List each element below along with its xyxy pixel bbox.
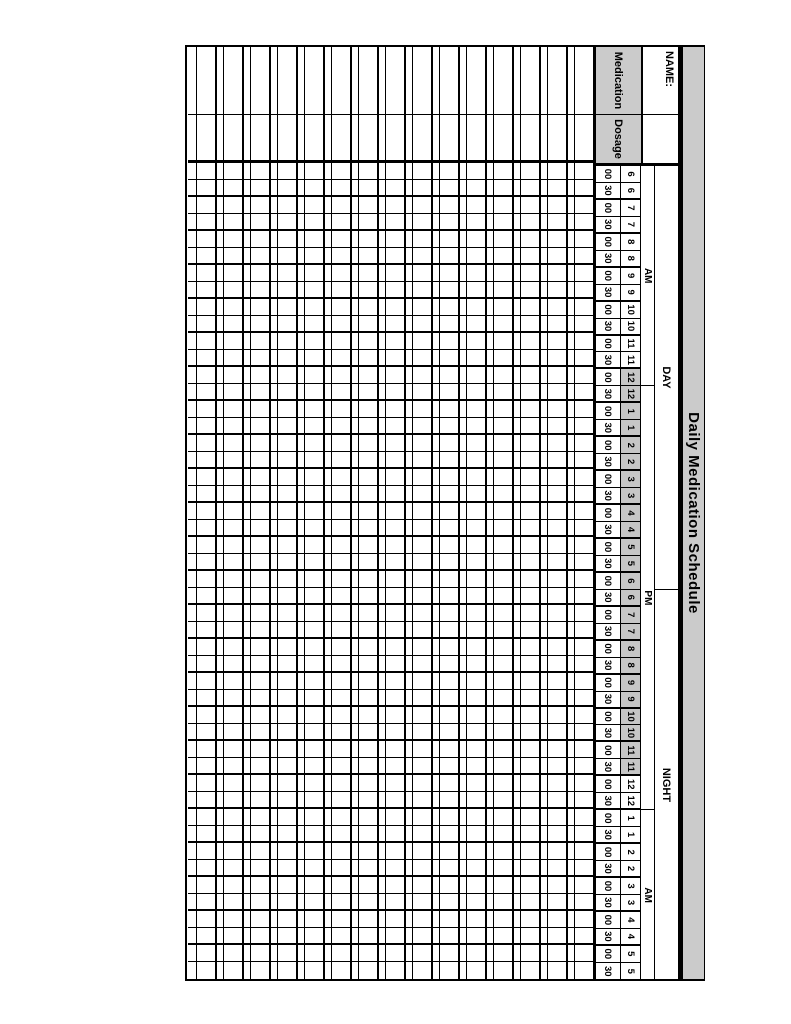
schedule-fill-in-cell[interactable] bbox=[575, 843, 593, 860]
schedule-fill-in-cell[interactable] bbox=[514, 265, 520, 282]
schedule-fill-in-cell[interactable] bbox=[217, 690, 223, 707]
schedule-fill-in-cell[interactable] bbox=[487, 248, 493, 265]
schedule-fill-in-cell[interactable] bbox=[413, 809, 431, 826]
schedule-fill-in-cell[interactable] bbox=[568, 384, 574, 401]
schedule-fill-in-cell[interactable] bbox=[271, 248, 277, 265]
schedule-fill-in-cell[interactable] bbox=[224, 809, 242, 826]
schedule-fill-in-cell[interactable] bbox=[251, 180, 269, 197]
schedule-fill-in-cell[interactable] bbox=[514, 469, 520, 486]
schedule-fill-in-cell[interactable] bbox=[541, 758, 547, 775]
schedule-fill-in-cell[interactable] bbox=[541, 163, 547, 180]
schedule-fill-in-cell[interactable] bbox=[521, 452, 539, 469]
schedule-fill-in-cell[interactable] bbox=[352, 350, 358, 367]
schedule-fill-in-cell[interactable] bbox=[298, 775, 304, 792]
schedule-fill-in-cell[interactable] bbox=[325, 809, 331, 826]
schedule-fill-in-cell[interactable] bbox=[541, 605, 547, 622]
schedule-fill-in-cell[interactable] bbox=[433, 843, 439, 860]
schedule-fill-in-cell[interactable] bbox=[494, 758, 512, 775]
schedule-fill-in-cell[interactable] bbox=[352, 571, 358, 588]
schedule-fill-in-cell[interactable] bbox=[251, 826, 269, 843]
schedule-fill-in-cell[interactable] bbox=[467, 588, 485, 605]
schedule-fill-in-cell[interactable] bbox=[224, 724, 242, 741]
schedule-fill-in-cell[interactable] bbox=[568, 350, 574, 367]
schedule-fill-in-cell[interactable] bbox=[575, 809, 593, 826]
schedule-fill-in-cell[interactable] bbox=[359, 826, 377, 843]
schedule-fill-in-cell[interactable] bbox=[568, 316, 574, 333]
schedule-fill-in-cell[interactable] bbox=[386, 962, 404, 979]
schedule-fill-in-cell[interactable] bbox=[433, 299, 439, 316]
schedule-fill-in-cell[interactable] bbox=[188, 673, 196, 690]
schedule-fill-in-cell[interactable] bbox=[197, 231, 215, 248]
schedule-fill-in-cell[interactable] bbox=[271, 962, 277, 979]
schedule-fill-in-cell[interactable] bbox=[467, 690, 485, 707]
schedule-fill-in-cell[interactable] bbox=[197, 333, 215, 350]
schedule-fill-in-cell[interactable] bbox=[494, 537, 512, 554]
schedule-fill-in-cell[interactable] bbox=[379, 588, 385, 605]
medication-fill-in-cell[interactable] bbox=[332, 47, 350, 115]
schedule-fill-in-cell[interactable] bbox=[406, 350, 412, 367]
schedule-fill-in-cell[interactable] bbox=[575, 435, 593, 452]
schedule-fill-in-cell[interactable] bbox=[440, 486, 458, 503]
schedule-fill-in-cell[interactable] bbox=[386, 741, 404, 758]
schedule-fill-in-cell[interactable] bbox=[541, 962, 547, 979]
schedule-fill-in-cell[interactable] bbox=[325, 367, 331, 384]
schedule-fill-in-cell[interactable] bbox=[514, 605, 520, 622]
schedule-fill-in-cell[interactable] bbox=[487, 452, 493, 469]
schedule-fill-in-cell[interactable] bbox=[217, 469, 223, 486]
schedule-fill-in-cell[interactable] bbox=[217, 503, 223, 520]
schedule-fill-in-cell[interactable] bbox=[332, 384, 350, 401]
schedule-fill-in-cell[interactable] bbox=[440, 350, 458, 367]
schedule-fill-in-cell[interactable] bbox=[197, 350, 215, 367]
schedule-fill-in-cell[interactable] bbox=[521, 316, 539, 333]
schedule-fill-in-cell[interactable] bbox=[487, 605, 493, 622]
schedule-fill-in-cell[interactable] bbox=[568, 673, 574, 690]
schedule-fill-in-cell[interactable] bbox=[548, 469, 566, 486]
schedule-fill-in-cell[interactable] bbox=[541, 214, 547, 231]
schedule-fill-in-cell[interactable] bbox=[298, 197, 304, 214]
schedule-fill-in-cell[interactable] bbox=[467, 401, 485, 418]
schedule-fill-in-cell[interactable] bbox=[298, 316, 304, 333]
schedule-fill-in-cell[interactable] bbox=[575, 248, 593, 265]
schedule-fill-in-cell[interactable] bbox=[440, 792, 458, 809]
dosage-fill-in-cell[interactable] bbox=[352, 115, 358, 163]
schedule-fill-in-cell[interactable] bbox=[217, 639, 223, 656]
schedule-fill-in-cell[interactable] bbox=[575, 639, 593, 656]
schedule-fill-in-cell[interactable] bbox=[548, 180, 566, 197]
schedule-fill-in-cell[interactable] bbox=[440, 622, 458, 639]
schedule-fill-in-cell[interactable] bbox=[305, 571, 323, 588]
schedule-fill-in-cell[interactable] bbox=[413, 231, 431, 248]
schedule-fill-in-cell[interactable] bbox=[271, 894, 277, 911]
schedule-fill-in-cell[interactable] bbox=[197, 877, 215, 894]
schedule-fill-in-cell[interactable] bbox=[548, 911, 566, 928]
schedule-fill-in-cell[interactable] bbox=[541, 248, 547, 265]
schedule-fill-in-cell[interactable] bbox=[251, 401, 269, 418]
schedule-fill-in-cell[interactable] bbox=[325, 435, 331, 452]
schedule-fill-in-cell[interactable] bbox=[197, 520, 215, 537]
schedule-fill-in-cell[interactable] bbox=[244, 265, 250, 282]
schedule-fill-in-cell[interactable] bbox=[278, 163, 296, 180]
schedule-fill-in-cell[interactable] bbox=[244, 809, 250, 826]
schedule-fill-in-cell[interactable] bbox=[433, 809, 439, 826]
schedule-fill-in-cell[interactable] bbox=[487, 877, 493, 894]
schedule-fill-in-cell[interactable] bbox=[514, 418, 520, 435]
schedule-fill-in-cell[interactable] bbox=[325, 775, 331, 792]
schedule-fill-in-cell[interactable] bbox=[379, 520, 385, 537]
schedule-fill-in-cell[interactable] bbox=[305, 622, 323, 639]
medication-fill-in-cell[interactable] bbox=[224, 47, 242, 115]
schedule-fill-in-cell[interactable] bbox=[298, 843, 304, 860]
schedule-fill-in-cell[interactable] bbox=[298, 418, 304, 435]
schedule-fill-in-cell[interactable] bbox=[460, 894, 466, 911]
schedule-fill-in-cell[interactable] bbox=[298, 401, 304, 418]
schedule-fill-in-cell[interactable] bbox=[244, 911, 250, 928]
schedule-fill-in-cell[interactable] bbox=[575, 707, 593, 724]
schedule-fill-in-cell[interactable] bbox=[379, 724, 385, 741]
schedule-fill-in-cell[interactable] bbox=[575, 316, 593, 333]
schedule-fill-in-cell[interactable] bbox=[487, 197, 493, 214]
schedule-fill-in-cell[interactable] bbox=[188, 809, 196, 826]
schedule-fill-in-cell[interactable] bbox=[379, 809, 385, 826]
medication-fill-in-cell[interactable] bbox=[521, 47, 539, 115]
schedule-fill-in-cell[interactable] bbox=[541, 571, 547, 588]
schedule-fill-in-cell[interactable] bbox=[568, 843, 574, 860]
schedule-fill-in-cell[interactable] bbox=[379, 945, 385, 962]
schedule-fill-in-cell[interactable] bbox=[188, 792, 196, 809]
schedule-fill-in-cell[interactable] bbox=[332, 282, 350, 299]
schedule-fill-in-cell[interactable] bbox=[244, 945, 250, 962]
schedule-fill-in-cell[interactable] bbox=[305, 418, 323, 435]
schedule-fill-in-cell[interactable] bbox=[298, 724, 304, 741]
schedule-fill-in-cell[interactable] bbox=[568, 163, 574, 180]
schedule-fill-in-cell[interactable] bbox=[413, 690, 431, 707]
schedule-fill-in-cell[interactable] bbox=[224, 163, 242, 180]
schedule-fill-in-cell[interactable] bbox=[406, 690, 412, 707]
schedule-fill-in-cell[interactable] bbox=[568, 282, 574, 299]
schedule-fill-in-cell[interactable] bbox=[568, 724, 574, 741]
schedule-fill-in-cell[interactable] bbox=[197, 775, 215, 792]
schedule-fill-in-cell[interactable] bbox=[494, 452, 512, 469]
schedule-fill-in-cell[interactable] bbox=[224, 180, 242, 197]
schedule-fill-in-cell[interactable] bbox=[379, 758, 385, 775]
schedule-fill-in-cell[interactable] bbox=[521, 707, 539, 724]
schedule-fill-in-cell[interactable] bbox=[487, 775, 493, 792]
schedule-fill-in-cell[interactable] bbox=[271, 231, 277, 248]
schedule-fill-in-cell[interactable] bbox=[352, 673, 358, 690]
schedule-fill-in-cell[interactable] bbox=[541, 809, 547, 826]
schedule-fill-in-cell[interactable] bbox=[413, 877, 431, 894]
schedule-fill-in-cell[interactable] bbox=[359, 197, 377, 214]
schedule-fill-in-cell[interactable] bbox=[568, 894, 574, 911]
schedule-fill-in-cell[interactable] bbox=[305, 656, 323, 673]
schedule-fill-in-cell[interactable] bbox=[433, 180, 439, 197]
schedule-fill-in-cell[interactable] bbox=[460, 945, 466, 962]
medication-fill-in-cell[interactable] bbox=[575, 47, 593, 115]
schedule-fill-in-cell[interactable] bbox=[325, 622, 331, 639]
schedule-fill-in-cell[interactable] bbox=[433, 571, 439, 588]
schedule-fill-in-cell[interactable] bbox=[352, 945, 358, 962]
schedule-fill-in-cell[interactable] bbox=[514, 401, 520, 418]
schedule-fill-in-cell[interactable] bbox=[251, 384, 269, 401]
schedule-fill-in-cell[interactable] bbox=[413, 707, 431, 724]
schedule-fill-in-cell[interactable] bbox=[460, 452, 466, 469]
schedule-fill-in-cell[interactable] bbox=[197, 809, 215, 826]
schedule-fill-in-cell[interactable] bbox=[197, 571, 215, 588]
schedule-fill-in-cell[interactable] bbox=[433, 214, 439, 231]
schedule-fill-in-cell[interactable] bbox=[487, 554, 493, 571]
schedule-fill-in-cell[interactable] bbox=[188, 333, 196, 350]
medication-fill-in-cell[interactable] bbox=[568, 47, 574, 115]
schedule-fill-in-cell[interactable] bbox=[298, 384, 304, 401]
schedule-fill-in-cell[interactable] bbox=[460, 724, 466, 741]
schedule-fill-in-cell[interactable] bbox=[386, 843, 404, 860]
schedule-fill-in-cell[interactable] bbox=[251, 894, 269, 911]
schedule-fill-in-cell[interactable] bbox=[217, 741, 223, 758]
schedule-fill-in-cell[interactable] bbox=[467, 520, 485, 537]
schedule-fill-in-cell[interactable] bbox=[325, 945, 331, 962]
schedule-fill-in-cell[interactable] bbox=[325, 826, 331, 843]
schedule-fill-in-cell[interactable] bbox=[575, 605, 593, 622]
schedule-fill-in-cell[interactable] bbox=[298, 911, 304, 928]
schedule-fill-in-cell[interactable] bbox=[440, 282, 458, 299]
schedule-fill-in-cell[interactable] bbox=[271, 435, 277, 452]
schedule-fill-in-cell[interactable] bbox=[440, 656, 458, 673]
schedule-fill-in-cell[interactable] bbox=[548, 316, 566, 333]
schedule-fill-in-cell[interactable] bbox=[413, 435, 431, 452]
schedule-fill-in-cell[interactable] bbox=[217, 452, 223, 469]
schedule-fill-in-cell[interactable] bbox=[386, 214, 404, 231]
schedule-fill-in-cell[interactable] bbox=[568, 486, 574, 503]
schedule-fill-in-cell[interactable] bbox=[440, 248, 458, 265]
schedule-fill-in-cell[interactable] bbox=[460, 826, 466, 843]
schedule-fill-in-cell[interactable] bbox=[541, 843, 547, 860]
schedule-fill-in-cell[interactable] bbox=[197, 418, 215, 435]
schedule-fill-in-cell[interactable] bbox=[386, 605, 404, 622]
schedule-fill-in-cell[interactable] bbox=[575, 792, 593, 809]
schedule-fill-in-cell[interactable] bbox=[379, 928, 385, 945]
schedule-fill-in-cell[interactable] bbox=[467, 265, 485, 282]
schedule-fill-in-cell[interactable] bbox=[406, 214, 412, 231]
schedule-fill-in-cell[interactable] bbox=[244, 605, 250, 622]
schedule-fill-in-cell[interactable] bbox=[548, 673, 566, 690]
schedule-fill-in-cell[interactable] bbox=[386, 401, 404, 418]
schedule-fill-in-cell[interactable] bbox=[332, 248, 350, 265]
schedule-fill-in-cell[interactable] bbox=[413, 452, 431, 469]
schedule-fill-in-cell[interactable] bbox=[217, 435, 223, 452]
schedule-fill-in-cell[interactable] bbox=[188, 418, 196, 435]
schedule-fill-in-cell[interactable] bbox=[217, 214, 223, 231]
schedule-fill-in-cell[interactable] bbox=[244, 826, 250, 843]
schedule-fill-in-cell[interactable] bbox=[271, 469, 277, 486]
medication-fill-in-cell[interactable] bbox=[352, 47, 358, 115]
schedule-fill-in-cell[interactable] bbox=[359, 554, 377, 571]
schedule-fill-in-cell[interactable] bbox=[332, 486, 350, 503]
schedule-fill-in-cell[interactable] bbox=[197, 894, 215, 911]
schedule-fill-in-cell[interactable] bbox=[332, 299, 350, 316]
schedule-fill-in-cell[interactable] bbox=[271, 673, 277, 690]
schedule-fill-in-cell[interactable] bbox=[278, 537, 296, 554]
schedule-fill-in-cell[interactable] bbox=[332, 911, 350, 928]
schedule-fill-in-cell[interactable] bbox=[197, 622, 215, 639]
schedule-fill-in-cell[interactable] bbox=[298, 809, 304, 826]
schedule-fill-in-cell[interactable] bbox=[379, 741, 385, 758]
schedule-fill-in-cell[interactable] bbox=[406, 401, 412, 418]
dosage-fill-in-cell[interactable] bbox=[224, 115, 242, 163]
schedule-fill-in-cell[interactable] bbox=[548, 656, 566, 673]
schedule-fill-in-cell[interactable] bbox=[298, 877, 304, 894]
schedule-fill-in-cell[interactable] bbox=[521, 639, 539, 656]
schedule-fill-in-cell[interactable] bbox=[494, 639, 512, 656]
schedule-fill-in-cell[interactable] bbox=[460, 316, 466, 333]
schedule-fill-in-cell[interactable] bbox=[575, 554, 593, 571]
schedule-fill-in-cell[interactable] bbox=[413, 486, 431, 503]
schedule-fill-in-cell[interactable] bbox=[188, 401, 196, 418]
schedule-fill-in-cell[interactable] bbox=[406, 860, 412, 877]
schedule-fill-in-cell[interactable] bbox=[433, 537, 439, 554]
medication-fill-in-cell[interactable] bbox=[433, 47, 439, 115]
schedule-fill-in-cell[interactable] bbox=[386, 469, 404, 486]
schedule-fill-in-cell[interactable] bbox=[541, 418, 547, 435]
schedule-fill-in-cell[interactable] bbox=[487, 537, 493, 554]
schedule-fill-in-cell[interactable] bbox=[325, 894, 331, 911]
schedule-fill-in-cell[interactable] bbox=[298, 554, 304, 571]
schedule-fill-in-cell[interactable] bbox=[413, 333, 431, 350]
schedule-fill-in-cell[interactable] bbox=[379, 792, 385, 809]
schedule-fill-in-cell[interactable] bbox=[332, 877, 350, 894]
schedule-fill-in-cell[interactable] bbox=[413, 792, 431, 809]
medication-fill-in-cell[interactable] bbox=[298, 47, 304, 115]
schedule-fill-in-cell[interactable] bbox=[352, 639, 358, 656]
schedule-fill-in-cell[interactable] bbox=[406, 486, 412, 503]
schedule-fill-in-cell[interactable] bbox=[379, 622, 385, 639]
schedule-fill-in-cell[interactable] bbox=[352, 826, 358, 843]
schedule-fill-in-cell[interactable] bbox=[514, 520, 520, 537]
schedule-fill-in-cell[interactable] bbox=[352, 180, 358, 197]
schedule-fill-in-cell[interactable] bbox=[440, 707, 458, 724]
schedule-fill-in-cell[interactable] bbox=[224, 673, 242, 690]
schedule-fill-in-cell[interactable] bbox=[359, 962, 377, 979]
schedule-fill-in-cell[interactable] bbox=[487, 928, 493, 945]
schedule-fill-in-cell[interactable] bbox=[217, 894, 223, 911]
schedule-fill-in-cell[interactable] bbox=[494, 282, 512, 299]
schedule-fill-in-cell[interactable] bbox=[379, 486, 385, 503]
schedule-fill-in-cell[interactable] bbox=[406, 622, 412, 639]
schedule-fill-in-cell[interactable] bbox=[541, 724, 547, 741]
schedule-fill-in-cell[interactable] bbox=[332, 928, 350, 945]
schedule-fill-in-cell[interactable] bbox=[298, 503, 304, 520]
schedule-fill-in-cell[interactable] bbox=[332, 605, 350, 622]
schedule-fill-in-cell[interactable] bbox=[460, 588, 466, 605]
schedule-fill-in-cell[interactable] bbox=[305, 639, 323, 656]
schedule-fill-in-cell[interactable] bbox=[514, 197, 520, 214]
schedule-fill-in-cell[interactable] bbox=[541, 537, 547, 554]
schedule-fill-in-cell[interactable] bbox=[244, 418, 250, 435]
schedule-fill-in-cell[interactable] bbox=[217, 180, 223, 197]
schedule-fill-in-cell[interactable] bbox=[521, 928, 539, 945]
schedule-fill-in-cell[interactable] bbox=[521, 435, 539, 452]
schedule-fill-in-cell[interactable] bbox=[379, 248, 385, 265]
schedule-fill-in-cell[interactable] bbox=[440, 741, 458, 758]
schedule-fill-in-cell[interactable] bbox=[433, 860, 439, 877]
schedule-fill-in-cell[interactable] bbox=[188, 435, 196, 452]
schedule-fill-in-cell[interactable] bbox=[487, 469, 493, 486]
schedule-fill-in-cell[interactable] bbox=[305, 197, 323, 214]
schedule-fill-in-cell[interactable] bbox=[541, 928, 547, 945]
schedule-fill-in-cell[interactable] bbox=[251, 231, 269, 248]
schedule-fill-in-cell[interactable] bbox=[386, 724, 404, 741]
schedule-fill-in-cell[interactable] bbox=[359, 928, 377, 945]
schedule-fill-in-cell[interactable] bbox=[244, 282, 250, 299]
schedule-fill-in-cell[interactable] bbox=[217, 588, 223, 605]
schedule-fill-in-cell[interactable] bbox=[575, 299, 593, 316]
schedule-fill-in-cell[interactable] bbox=[467, 486, 485, 503]
medication-fill-in-cell[interactable] bbox=[379, 47, 385, 115]
schedule-fill-in-cell[interactable] bbox=[244, 571, 250, 588]
schedule-fill-in-cell[interactable] bbox=[379, 282, 385, 299]
schedule-fill-in-cell[interactable] bbox=[521, 520, 539, 537]
schedule-fill-in-cell[interactable] bbox=[352, 911, 358, 928]
schedule-fill-in-cell[interactable] bbox=[359, 724, 377, 741]
schedule-fill-in-cell[interactable] bbox=[224, 758, 242, 775]
schedule-fill-in-cell[interactable] bbox=[406, 809, 412, 826]
schedule-fill-in-cell[interactable] bbox=[541, 826, 547, 843]
dosage-fill-in-cell[interactable] bbox=[379, 115, 385, 163]
schedule-fill-in-cell[interactable] bbox=[188, 265, 196, 282]
schedule-fill-in-cell[interactable] bbox=[494, 571, 512, 588]
schedule-fill-in-cell[interactable] bbox=[568, 435, 574, 452]
schedule-fill-in-cell[interactable] bbox=[541, 299, 547, 316]
schedule-fill-in-cell[interactable] bbox=[278, 928, 296, 945]
schedule-fill-in-cell[interactable] bbox=[460, 299, 466, 316]
schedule-fill-in-cell[interactable] bbox=[188, 503, 196, 520]
schedule-fill-in-cell[interactable] bbox=[359, 945, 377, 962]
schedule-fill-in-cell[interactable] bbox=[251, 418, 269, 435]
schedule-fill-in-cell[interactable] bbox=[188, 860, 196, 877]
schedule-fill-in-cell[interactable] bbox=[271, 809, 277, 826]
schedule-fill-in-cell[interactable] bbox=[278, 945, 296, 962]
schedule-fill-in-cell[interactable] bbox=[352, 333, 358, 350]
schedule-fill-in-cell[interactable] bbox=[271, 384, 277, 401]
schedule-fill-in-cell[interactable] bbox=[548, 554, 566, 571]
schedule-fill-in-cell[interactable] bbox=[568, 401, 574, 418]
schedule-fill-in-cell[interactable] bbox=[386, 656, 404, 673]
schedule-fill-in-cell[interactable] bbox=[541, 367, 547, 384]
schedule-fill-in-cell[interactable] bbox=[217, 197, 223, 214]
schedule-fill-in-cell[interactable] bbox=[386, 435, 404, 452]
schedule-fill-in-cell[interactable] bbox=[305, 758, 323, 775]
schedule-fill-in-cell[interactable] bbox=[514, 758, 520, 775]
schedule-fill-in-cell[interactable] bbox=[575, 622, 593, 639]
schedule-fill-in-cell[interactable] bbox=[521, 571, 539, 588]
schedule-fill-in-cell[interactable] bbox=[224, 690, 242, 707]
schedule-fill-in-cell[interactable] bbox=[244, 180, 250, 197]
schedule-fill-in-cell[interactable] bbox=[386, 571, 404, 588]
schedule-fill-in-cell[interactable] bbox=[433, 282, 439, 299]
schedule-fill-in-cell[interactable] bbox=[298, 520, 304, 537]
schedule-fill-in-cell[interactable] bbox=[224, 248, 242, 265]
schedule-fill-in-cell[interactable] bbox=[575, 775, 593, 792]
schedule-fill-in-cell[interactable] bbox=[188, 928, 196, 945]
schedule-fill-in-cell[interactable] bbox=[460, 197, 466, 214]
schedule-fill-in-cell[interactable] bbox=[379, 690, 385, 707]
schedule-fill-in-cell[interactable] bbox=[298, 826, 304, 843]
schedule-fill-in-cell[interactable] bbox=[352, 299, 358, 316]
schedule-fill-in-cell[interactable] bbox=[325, 911, 331, 928]
schedule-fill-in-cell[interactable] bbox=[325, 537, 331, 554]
schedule-fill-in-cell[interactable] bbox=[271, 401, 277, 418]
schedule-fill-in-cell[interactable] bbox=[352, 503, 358, 520]
